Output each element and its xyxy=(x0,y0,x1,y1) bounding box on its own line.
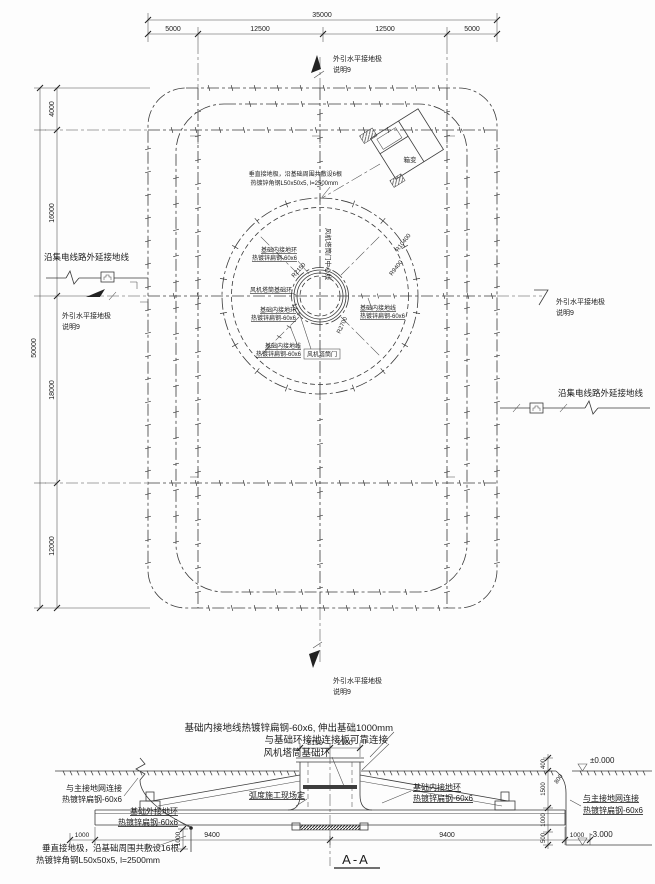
dim-left-seg-2: 16000 xyxy=(49,203,56,223)
grounding-plan-drawing: 35000 5000 12500 12500 5000 50000 4000 1… xyxy=(0,0,655,884)
section-title: A-A xyxy=(342,852,370,867)
dim-bottom-9400-right: 9400 xyxy=(439,832,455,839)
section-view: 基础内接地线热镀锌扁钢-60x6, 伸出基础1000mm 与基础环接地连接板可靠… xyxy=(36,722,652,868)
label-main-grid-right-1: 与主接地网连接 xyxy=(583,793,639,803)
radius-label-r2700: R2700 xyxy=(336,316,349,335)
label-inner-ring-b-2: 热镀锌扁钢-60x6 xyxy=(251,314,297,322)
dim-bottom-1000-left: 1000 xyxy=(75,832,90,839)
bottom-ext-label-1: 外引水平接地极 xyxy=(333,676,382,685)
left-ext-label-1: 外引水平接地极 xyxy=(62,311,111,320)
radius-label-r9400: R9400 xyxy=(389,259,405,277)
transformer-label: 箱变 xyxy=(404,155,418,164)
dim-seg-3: 12500 xyxy=(375,26,395,33)
right-collector-label: 沿集电线路外延接地线 xyxy=(558,388,644,398)
bottom-ext-label-2: 说明9 xyxy=(333,687,351,696)
label-inner-ring-a-2: 热镀锌扁钢-60x6 xyxy=(252,254,298,262)
rod-note-sec-1: 垂直接地极，沿基础周围共敷设16根 xyxy=(42,843,179,853)
rod-note-sec-2: 热镀锌角钢L50x50x5, l=2500mm xyxy=(36,855,160,865)
dim-total-width: 35000 xyxy=(312,12,332,19)
vertical-rod-note-plan: 垂直接地极，沿基础周围共敷设6根 热镀锌角钢L50x50x5, l=2500mm xyxy=(249,170,342,197)
dim-500: 500 xyxy=(541,832,547,843)
dim-400: 400 xyxy=(541,758,547,769)
dim-left-seg-4: 12000 xyxy=(49,536,56,556)
drawing-canvas: 35000 5000 12500 12500 5000 50000 4000 1… xyxy=(0,0,655,884)
label-inner-line-b-2: 热镀锌扁钢-60x6 xyxy=(360,312,406,320)
dim-seg-1: 5000 xyxy=(165,26,181,33)
label-inner-ring-sec-2: 热镀锌扁钢-60x6 xyxy=(413,793,474,803)
dim-800: 800 xyxy=(554,773,565,785)
label-inner-ring-a-1: 基础内接地环 xyxy=(261,246,297,254)
label-inner-ring-sec-1: 基础内接地环 xyxy=(413,782,461,792)
rod-note-line2: 热镀锌角钢L50x50x5, l=2500mm xyxy=(250,179,338,187)
rod-note-line1: 垂直接地极，沿基础周围共敷设6根 xyxy=(249,170,342,178)
label-inner-ring-b-1: 基础内接地环 xyxy=(260,306,296,314)
elevation-neg3000: -3.000 xyxy=(590,830,613,839)
dim-left-seg-3: 18000 xyxy=(49,380,56,400)
dim-seg-2: 12500 xyxy=(250,26,270,33)
note-top-external: 外引水平接地极 说明9 xyxy=(311,54,382,78)
tower-ring-embed-plate xyxy=(303,785,357,789)
connection-box-icon xyxy=(101,272,114,282)
label-tower-ring: 风机塔筒基础环 xyxy=(250,286,292,294)
right-ext-label-1: 外引水平接地极 xyxy=(556,297,605,306)
label-arc-site: 弧度施工现场定 xyxy=(249,790,305,800)
dim-bottom-9400-left: 9400 xyxy=(204,832,220,839)
dim-bottom-1000-right: 1000 xyxy=(570,832,585,839)
label-outer-ring-2: 热镀锌扁钢-60x6 xyxy=(118,817,179,827)
dim-1000-mid: 1000 xyxy=(541,813,547,827)
top-ext-label-1: 外引水平接地极 xyxy=(333,54,382,63)
box-transformer: 箱变 xyxy=(322,102,447,198)
elevation-zero: ±0.000 xyxy=(590,756,615,765)
label-inner-line-b-1: 基础内接地线 xyxy=(360,304,396,312)
connection-box-icon-right xyxy=(530,403,543,413)
note-right-external: 外引水平接地极 说明9 沿集电线路外延接地线 xyxy=(500,290,650,414)
top-ext-label-2: 说明9 xyxy=(333,65,351,74)
dim-2150-left: 2150 xyxy=(307,740,323,747)
label-main-grid-left-2: 热镀锌扁钢-60x6 xyxy=(62,794,123,804)
label-tower-door: 风机塔筒门 xyxy=(307,351,337,359)
dim-2150-right: 2150 xyxy=(337,740,353,747)
label-main-grid-left-1: 与主接地网连接 xyxy=(66,783,122,793)
left-collector-label: 沿集电线路外延接地线 xyxy=(44,252,130,262)
label-inner-line-a-1: 基础内接地线 xyxy=(265,342,301,350)
section-note-2: 与基础环接地连接板可靠连接 xyxy=(264,734,388,746)
dim-left-seg-1: 4000 xyxy=(49,101,56,117)
left-dimension-chain: 50000 4000 16000 18000 12000 xyxy=(31,85,150,611)
door-centerline-label: 风机塔筒门中心线 xyxy=(324,228,333,281)
dim-seg-4: 5000 xyxy=(464,26,480,33)
section-note-3: 风机塔筒基础环 xyxy=(263,747,330,759)
label-outer-ring-1: 基础外接地环 xyxy=(130,806,178,816)
section-note-1: 基础内接地线热镀锌扁钢-60x6, 伸出基础1000mm xyxy=(184,722,393,734)
top-dimension-chain: 35000 5000 12500 12500 5000 xyxy=(145,12,500,42)
dim-total-height: 50000 xyxy=(31,338,38,358)
label-inner-line-a-2: 热镀锌扁钢-60x6 xyxy=(256,350,302,358)
left-ext-label-2: 说明9 xyxy=(62,322,80,331)
note-left-external: 沿集电线路外延接地线 外引水平接地极 说明9 xyxy=(44,252,148,331)
right-ext-label-2: 说明9 xyxy=(556,308,574,317)
label-main-grid-right-2: 热镀锌扁钢-60x6 xyxy=(583,805,644,815)
note-bottom-external: 外引水平接地极 说明9 xyxy=(309,642,382,696)
dim-1500: 1500 xyxy=(541,782,547,796)
